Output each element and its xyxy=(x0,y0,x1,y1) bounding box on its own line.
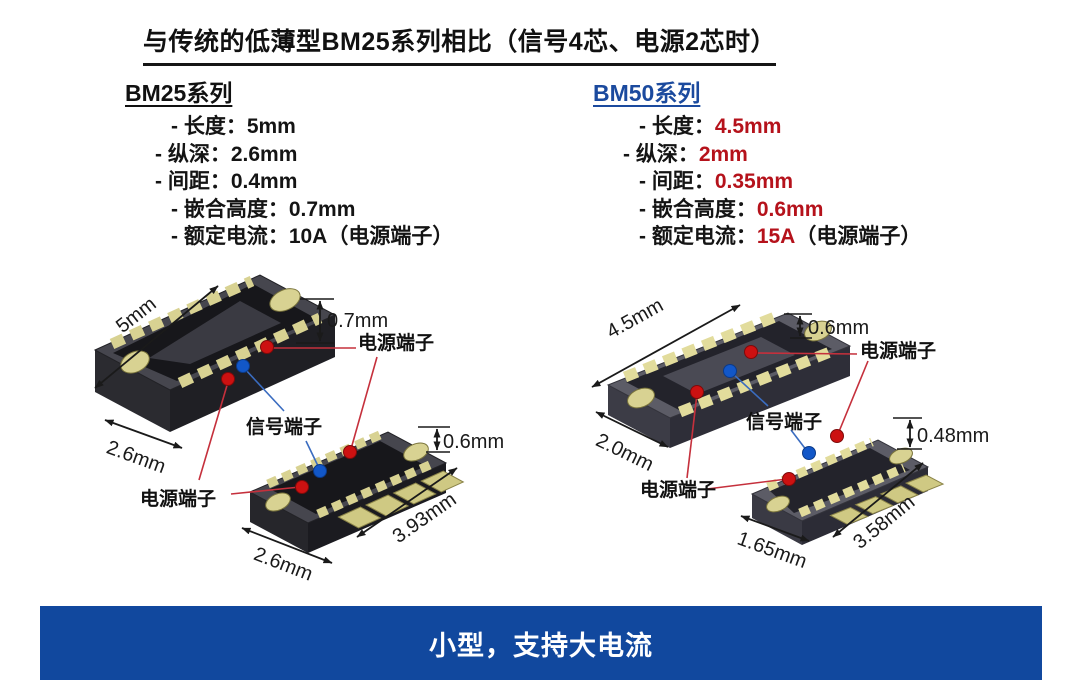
bm50-power-callout-line xyxy=(753,353,857,354)
bm50-diagram: 4.5mm 0.6mm 2.0mm 0.48mm 1.65mm 3.58mm 电… xyxy=(592,294,989,573)
signal-terminal-dot xyxy=(724,365,737,378)
power-terminal-dot xyxy=(831,430,844,443)
signal-terminal-dot xyxy=(237,360,250,373)
banner-text: 小型，支持大电流 xyxy=(429,624,653,663)
bm50-plug-height-dim: 0.48mm xyxy=(917,425,989,447)
power-terminal-dot xyxy=(261,341,274,354)
power-terminal-dot xyxy=(296,481,309,494)
bm25-plug-height-dim: 0.6mm xyxy=(443,431,504,453)
power-terminal-dot xyxy=(344,446,357,459)
bm25-depth-dim: 2.6mm xyxy=(104,437,169,479)
bm25-power-terminal-label-top: 电源端子 xyxy=(358,331,434,354)
power-terminal-dot xyxy=(691,386,704,399)
bm25-height-dim: 0.7mm xyxy=(327,310,388,332)
power-terminal-dot xyxy=(222,373,235,386)
bm25-diagram: 5mm 2.6mm 0.7mm 0.6mm 3.93mm 2.6mm 电源端子 … xyxy=(95,275,504,586)
bottom-banner: 小型，支持大电流 xyxy=(40,606,1042,680)
signal-terminal-dot xyxy=(314,465,327,478)
bm50-power-terminal-label-top: 电源端子 xyxy=(860,339,936,362)
slide: 与传统的低薄型BM25系列相比（信号4芯、电源2芯时） BM25系列 - 长度：… xyxy=(0,0,1080,684)
bm50-height-dim: 0.6mm xyxy=(808,317,869,339)
signal-terminal-dot xyxy=(803,447,816,460)
bm50-power-terminal-label-bottom: 电源端子 xyxy=(640,478,716,501)
bm25-signal-terminal-label: 信号端子 xyxy=(246,415,322,438)
bm25-power-terminal-label-bottom: 电源端子 xyxy=(140,487,216,510)
connector-diagrams: 5mm 2.6mm 0.7mm 0.6mm 3.93mm 2.6mm 电源端子 … xyxy=(0,0,1080,610)
bm50-length-dim: 4.5mm xyxy=(603,294,667,343)
power-terminal-dot xyxy=(783,473,796,486)
power-terminal-dot xyxy=(745,346,758,359)
bm50-signal-terminal-label: 信号端子 xyxy=(746,410,822,433)
